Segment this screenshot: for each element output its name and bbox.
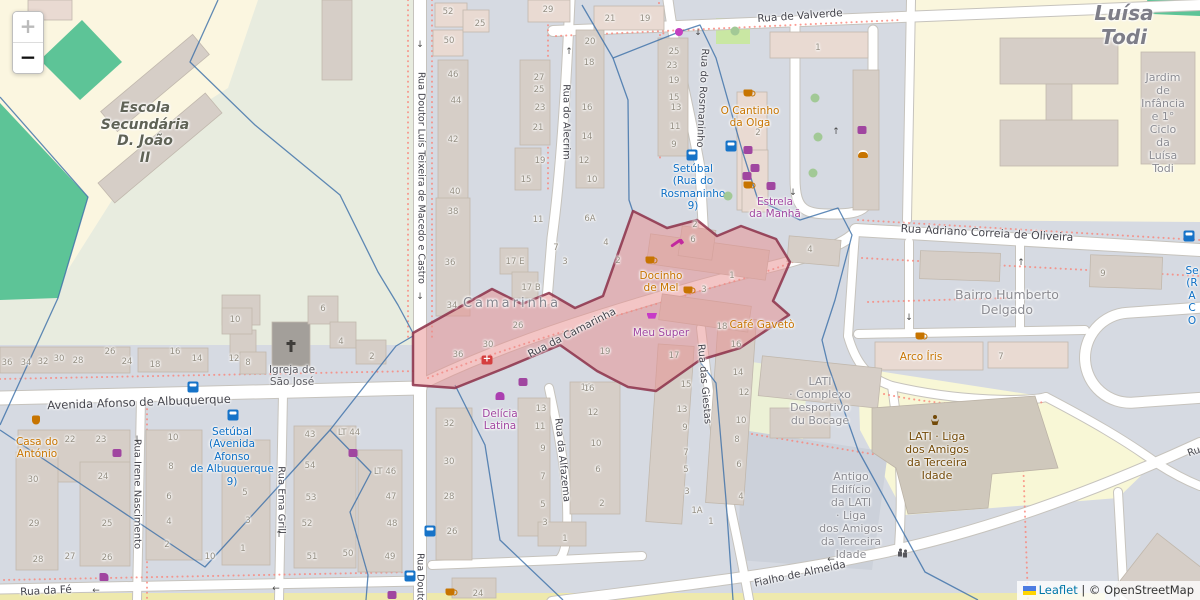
- ukraine-flag-icon: [1023, 586, 1036, 595]
- zoom-out-button[interactable]: −: [13, 43, 43, 73]
- base-map-tiles: [0, 0, 1200, 600]
- openstreetmap-link[interactable]: © OpenStreetMap: [1089, 583, 1194, 597]
- map-viewport[interactable]: Rua de ValverdeRua Doutor Luís Teixeira …: [0, 0, 1200, 600]
- leaflet-link[interactable]: Leaflet: [1039, 583, 1078, 597]
- attribution-separator: |: [1078, 583, 1089, 597]
- zoom-control: + −: [12, 11, 44, 74]
- zoom-in-button[interactable]: +: [13, 12, 43, 43]
- attribution-bar: Leaflet | © OpenStreetMap: [1017, 581, 1200, 600]
